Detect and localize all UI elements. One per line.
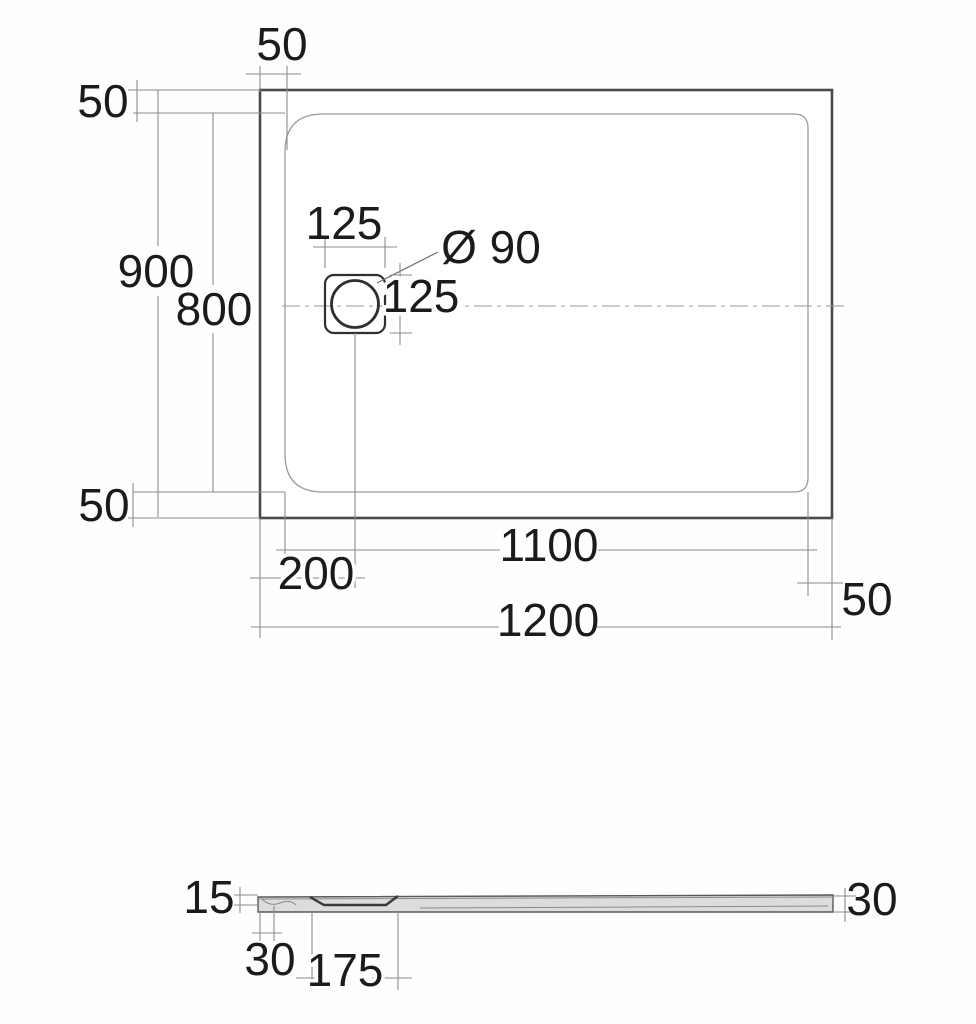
dim-label-inset-top: 50: [256, 18, 307, 70]
dim-label-inset-left-bottom: 50: [78, 479, 129, 531]
dim-label-drain-flange-height: 125: [383, 270, 460, 322]
profile-view: 15 30 175 30: [183, 871, 897, 996]
dim-label-overall-width: 1200: [497, 594, 599, 646]
tray-outline: [260, 90, 832, 518]
dim-label-edge-height: 15: [183, 871, 234, 923]
dim-label-drain-diameter: Ø 90: [441, 221, 541, 273]
dim-label-inner-width: 1100: [500, 519, 599, 571]
plan-view: 50 50 900 800 50 125 Ø 90 125 200 1100 1…: [77, 18, 892, 646]
shower-tray-drawing: 50 50 900 800 50 125 Ø 90 125 200 1100 1…: [0, 0, 976, 1024]
dim-label-inner-depth: 800: [176, 283, 253, 335]
dim-label-drain-offset: 200: [278, 547, 355, 599]
dim-label-edge-width: 30: [244, 933, 295, 985]
dim-label-drain-flange-width: 125: [306, 197, 383, 249]
dim-label-end-height: 30: [846, 873, 897, 925]
dim-label-inset-right: 50: [841, 573, 892, 625]
dim-label-recess-width: 175: [307, 944, 384, 996]
dim-label-inset-left-top: 50: [77, 75, 128, 127]
technical-drawing-canvas: 50 50 900 800 50 125 Ø 90 125 200 1100 1…: [0, 0, 976, 1024]
